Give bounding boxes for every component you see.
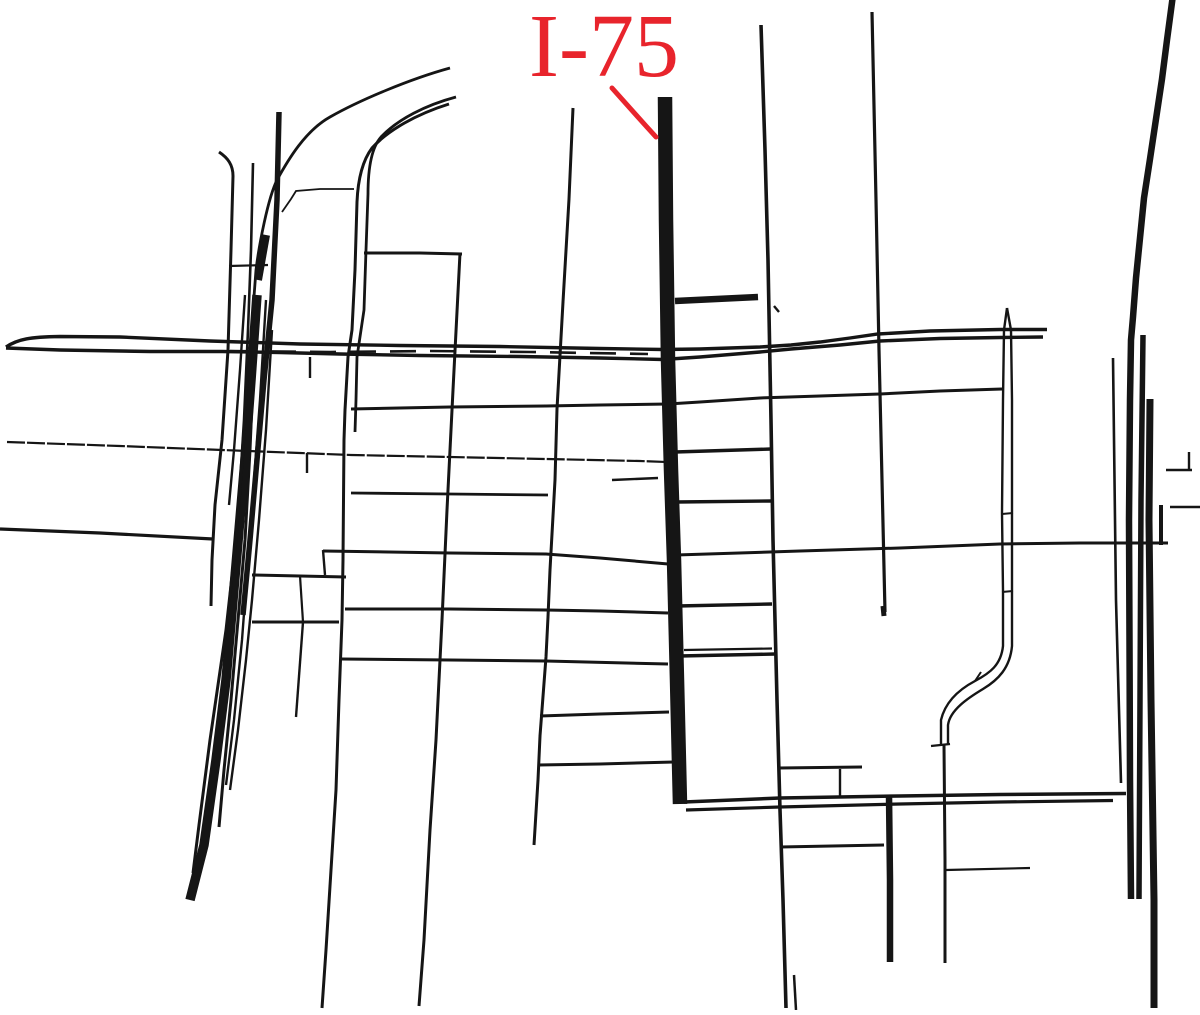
svg-text:I-75: I-75 [529, 0, 679, 96]
